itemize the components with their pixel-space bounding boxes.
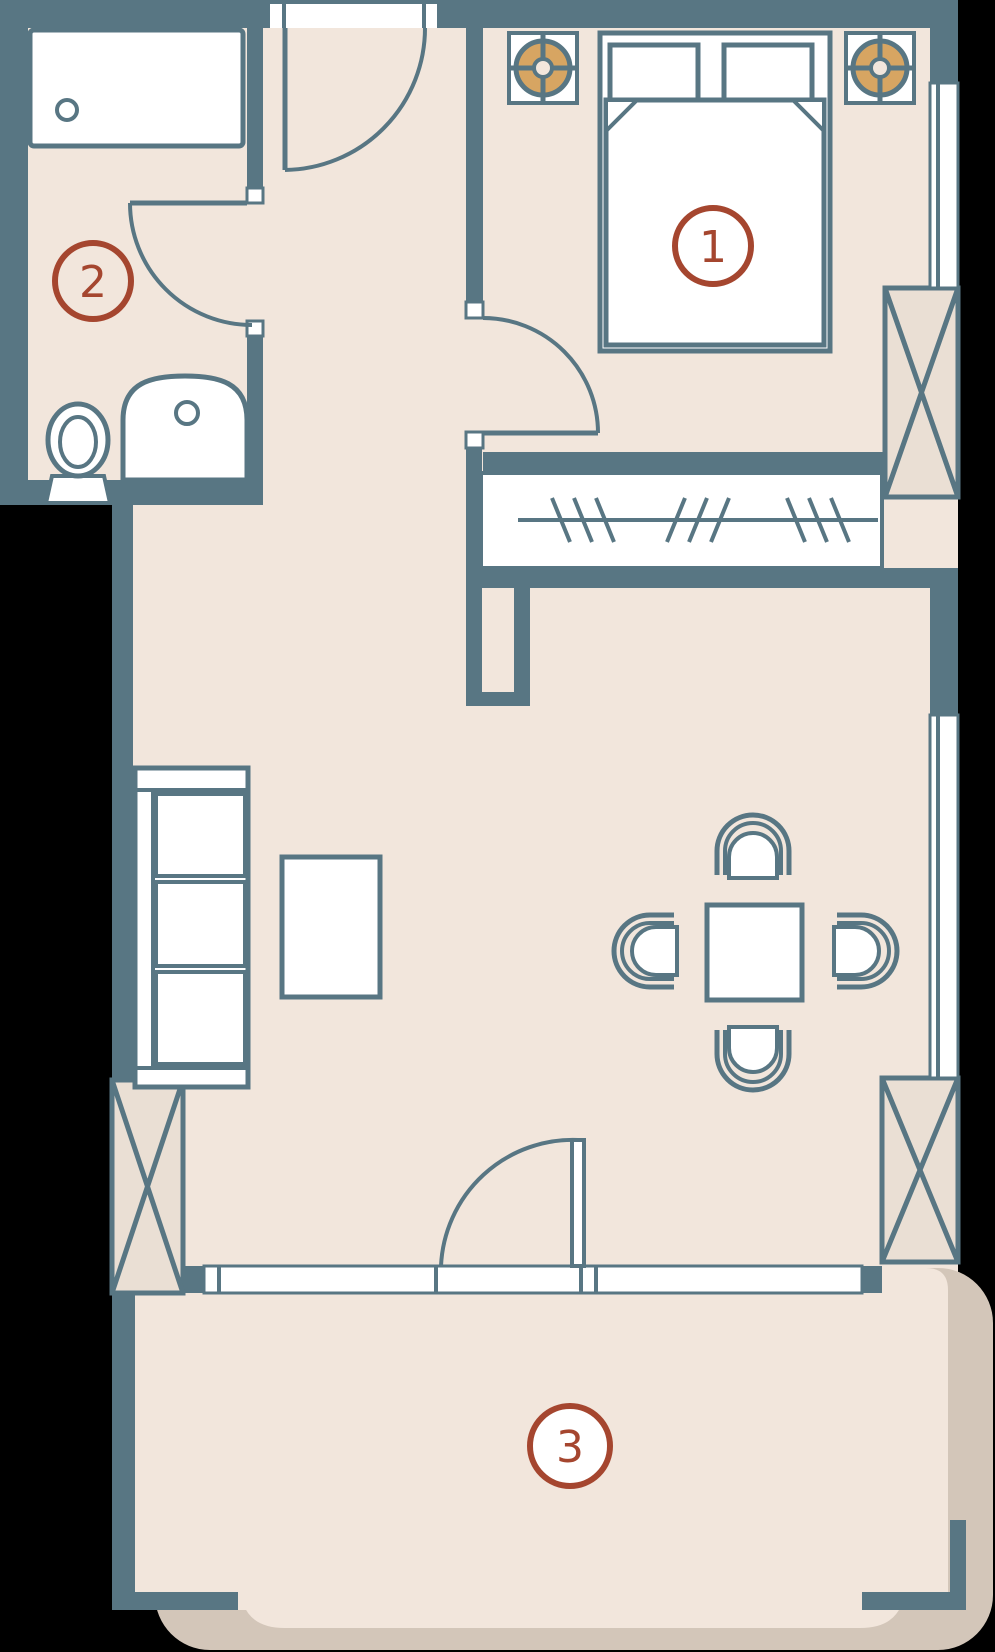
- double-bed: [600, 33, 830, 351]
- balcony-door-leaf: [572, 1140, 584, 1266]
- wall-balcony-left: [112, 1293, 135, 1610]
- sofa-cushion: [156, 794, 245, 876]
- dining-table: [707, 905, 802, 1000]
- room-label-number-1: 1: [699, 222, 727, 273]
- column-living-right: [882, 1078, 958, 1262]
- window-balcony-band: [204, 1266, 862, 1293]
- wall-shaft-cap: [466, 692, 530, 706]
- balcony-floor-edge: [240, 1560, 905, 1628]
- sofa: [135, 768, 248, 1087]
- column-bedroom-right: [885, 288, 958, 497]
- wall-sill-left: [183, 1266, 204, 1293]
- bathtub: [30, 30, 243, 146]
- wall-balcony-corner-left: [112, 1592, 238, 1610]
- column-living-left: [112, 1080, 183, 1293]
- bathtub-drain: [57, 100, 77, 120]
- wall-top-right: [437, 0, 958, 28]
- sofa-cushion: [156, 882, 245, 966]
- bedroom-door-jamb-bottom: [466, 432, 483, 448]
- wall-bathroom-bottom: [0, 480, 250, 505]
- entrance-opening: [270, 0, 437, 28]
- coffee-table: [282, 857, 380, 997]
- wall-bedroom-bottom: [483, 452, 885, 473]
- sofa-cushion: [156, 972, 245, 1064]
- sink: [123, 376, 247, 480]
- wall-shaft-right: [514, 588, 530, 694]
- wall-bathroom-partition-upper: [247, 28, 263, 188]
- wall-top-left: [0, 0, 270, 28]
- toilet-tank: [46, 476, 110, 503]
- toilet: [46, 404, 110, 503]
- room-label-number-3: 3: [556, 1422, 584, 1473]
- wall-right-mid: [930, 588, 958, 715]
- room-label-number-2: 2: [79, 257, 107, 308]
- floor-plan-canvas: 1 2 3: [0, 0, 995, 1652]
- sink-faucet: [176, 402, 198, 424]
- bedroom-door-jamb-top: [466, 302, 483, 318]
- window-living-right: [930, 715, 958, 1078]
- bathroom-door-jamb-top: [247, 188, 263, 203]
- wall-right-top: [930, 28, 958, 83]
- wardrobe: [481, 473, 882, 568]
- window-bedroom-right: [930, 83, 958, 288]
- nightstand-right: [844, 32, 916, 104]
- room-label-balcony: 3: [530, 1406, 610, 1486]
- nightstand-left: [507, 32, 579, 104]
- wall-sill-right: [862, 1266, 882, 1293]
- wall-wardrobe-bottom: [466, 568, 958, 588]
- wall-left-outer: [0, 0, 28, 505]
- wall-living-left: [112, 505, 133, 1080]
- wall-hall-bedroom-upper: [466, 28, 483, 302]
- wall-balcony-corner-right-horizontal: [862, 1592, 966, 1610]
- floor-plan-page: 1 2 3: [0, 0, 995, 1652]
